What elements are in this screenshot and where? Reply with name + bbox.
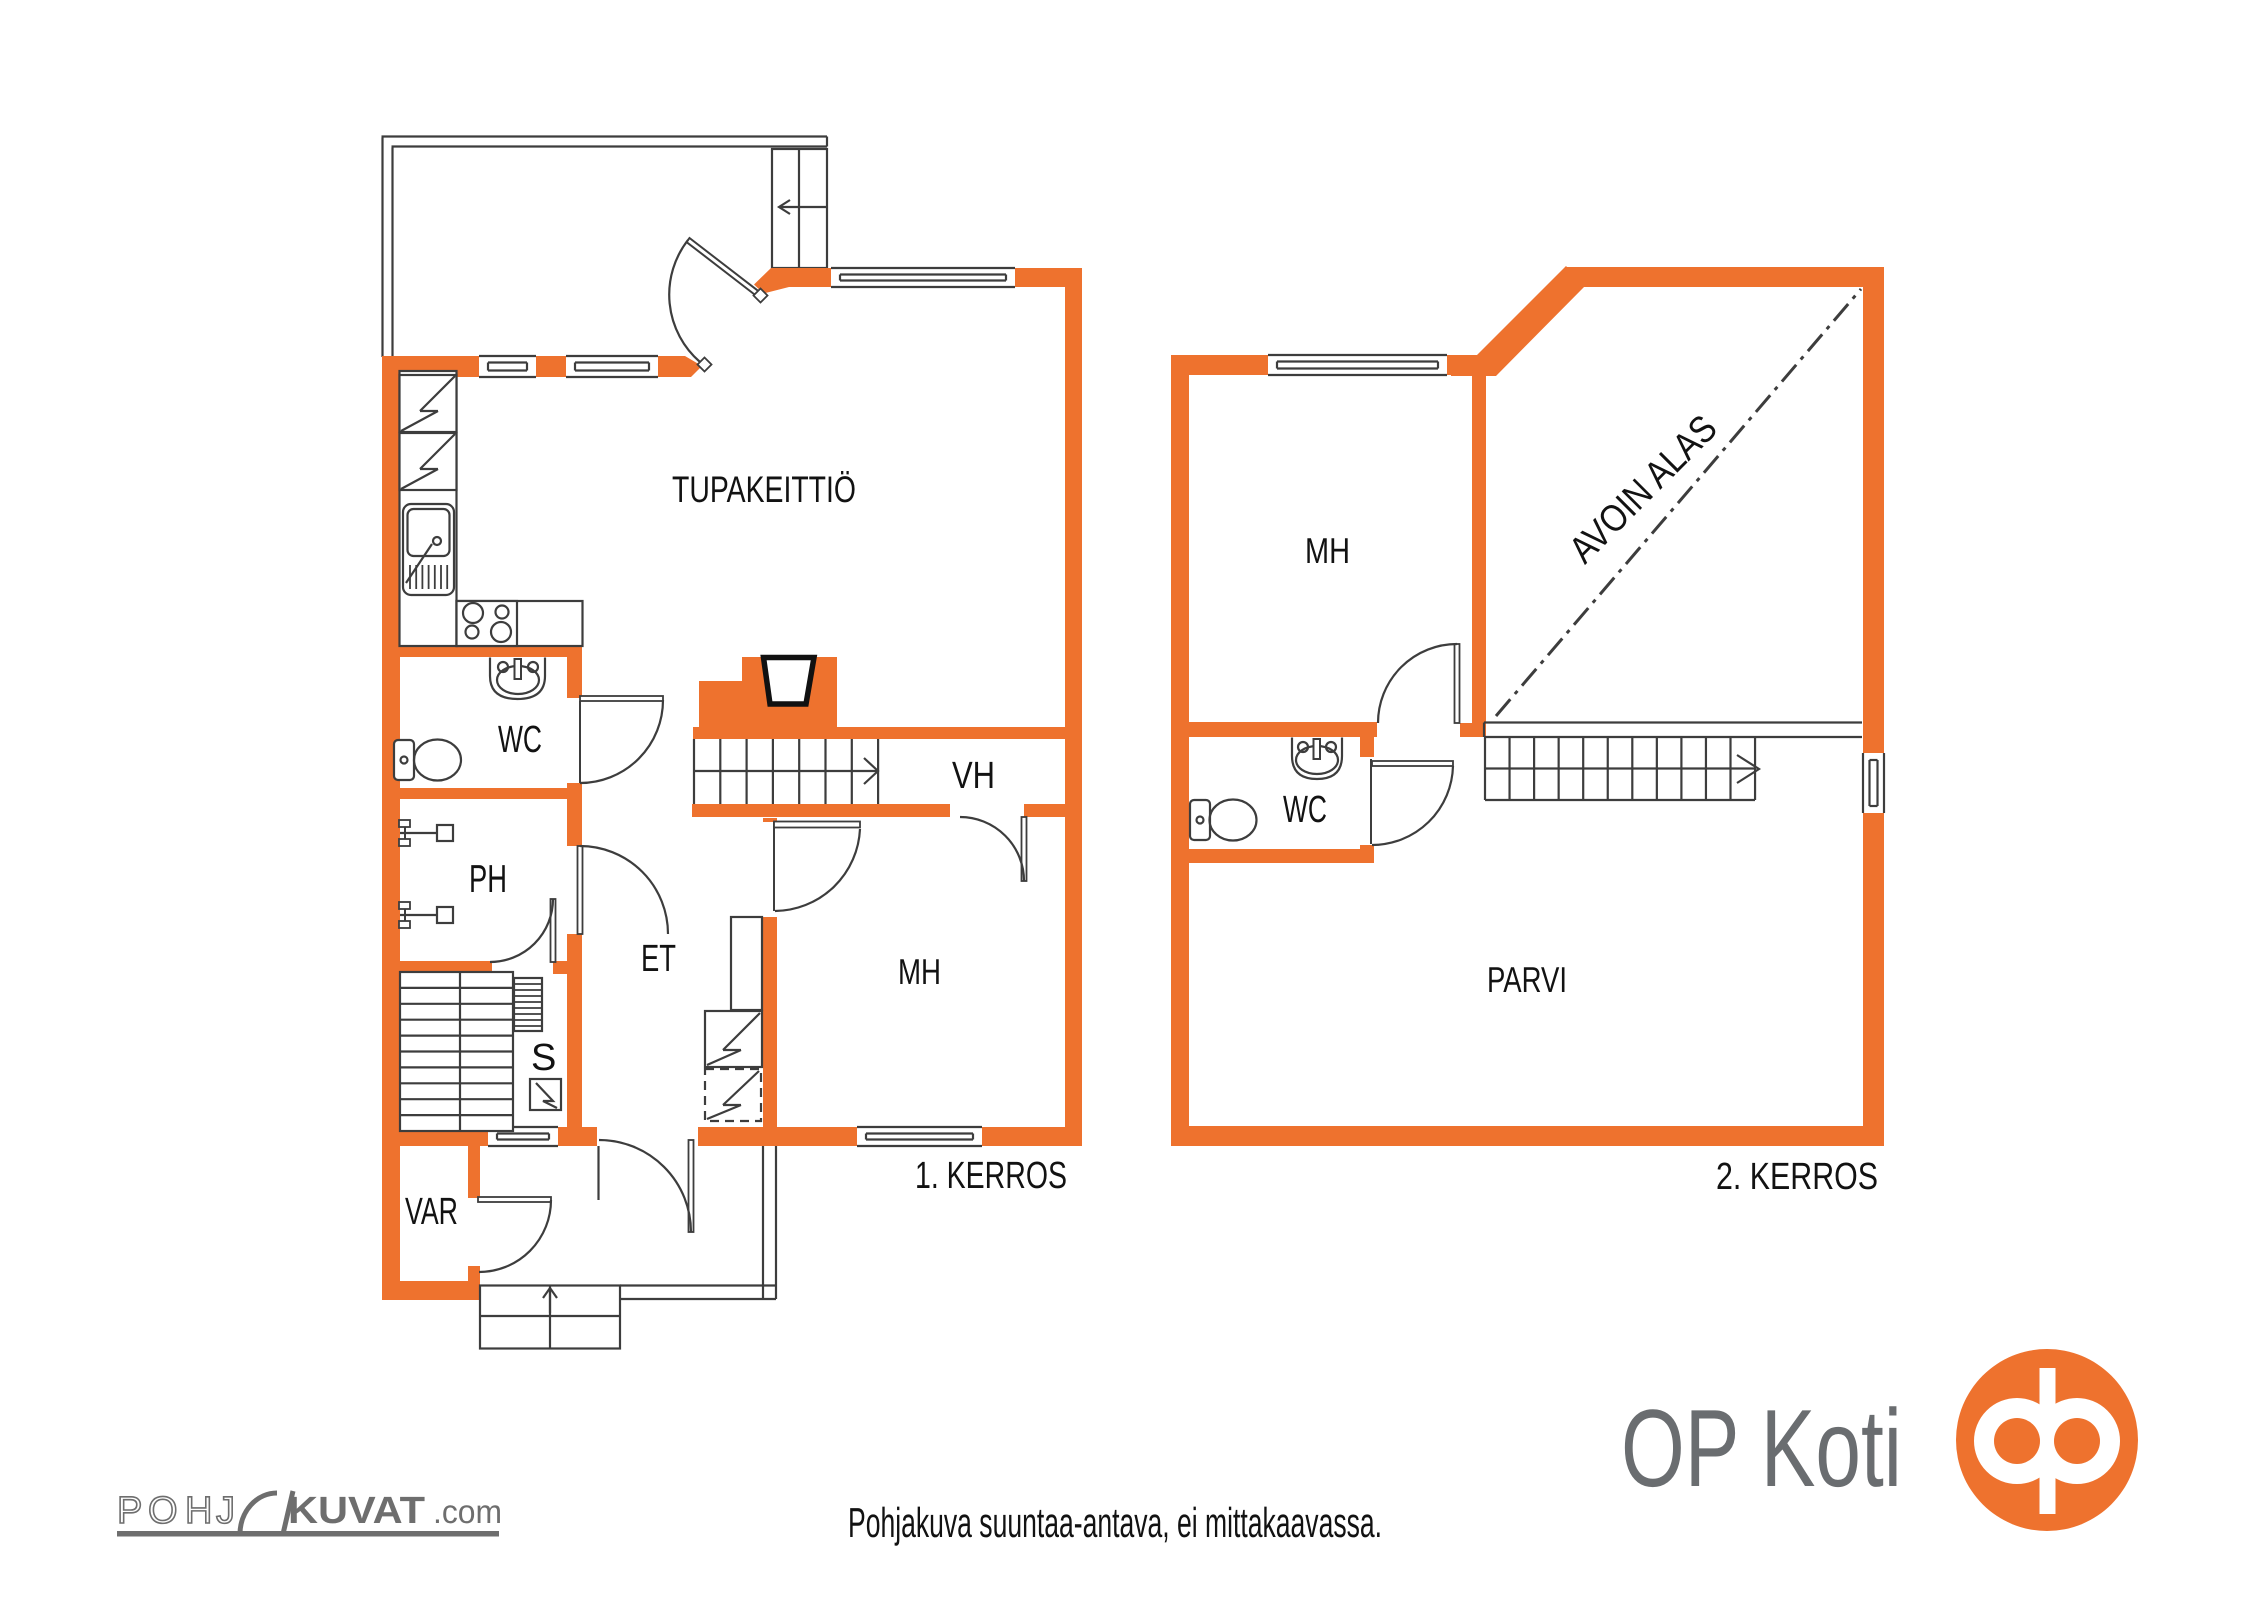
svg-text:O: O <box>148 1490 178 1532</box>
svg-text:Pohjakuva suuntaa-antava, ei m: Pohjakuva suuntaa-antava, ei mittakaavas… <box>848 1499 1382 1546</box>
svg-text:2. KERROS: 2. KERROS <box>1716 1156 1878 1198</box>
svg-text:TUPAKEITTIÖ: TUPAKEITTIÖ <box>672 469 856 510</box>
svg-text:PH: PH <box>469 858 507 901</box>
svg-text:H: H <box>185 1490 212 1532</box>
svg-text:1. KERROS: 1. KERROS <box>915 1155 1067 1197</box>
svg-text:MH: MH <box>898 951 941 992</box>
svg-text:KUVAT: KUVAT <box>288 1490 425 1532</box>
svg-text:.com: .com <box>433 1493 502 1530</box>
svg-text:VH: VH <box>952 755 995 797</box>
svg-text:OP Koti: OP Koti <box>1621 1387 1902 1510</box>
svg-text:J: J <box>216 1490 235 1532</box>
svg-text:VAR: VAR <box>405 1191 458 1233</box>
svg-text:PARVI: PARVI <box>1487 959 1567 1000</box>
svg-text:P: P <box>117 1490 142 1532</box>
svg-text:WC: WC <box>498 719 542 761</box>
svg-text:WC: WC <box>1283 789 1327 831</box>
svg-text:MH: MH <box>1305 530 1350 571</box>
svg-text:ET: ET <box>641 938 676 980</box>
svg-text:S: S <box>531 1037 556 1079</box>
